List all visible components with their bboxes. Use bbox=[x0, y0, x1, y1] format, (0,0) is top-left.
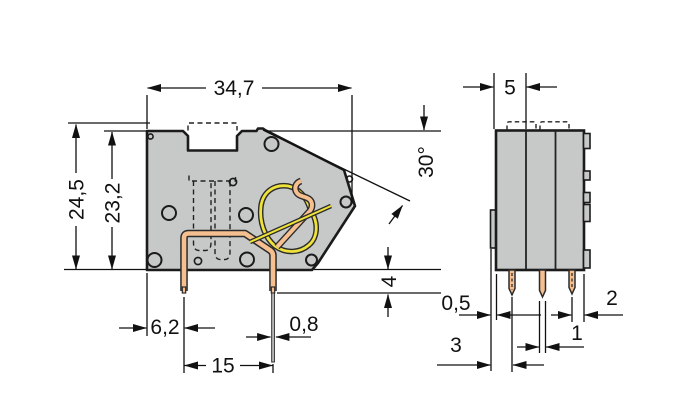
solder-pin bbox=[540, 270, 546, 297]
dim-total-height-label: 24,5 bbox=[66, 179, 89, 220]
dim-pin-width-front-label: 1 bbox=[571, 322, 583, 345]
pushbutton-dashed-top bbox=[507, 122, 569, 130]
front-solder-pins bbox=[509, 270, 575, 297]
dim-pin-protrusion-label: 4 bbox=[378, 275, 401, 287]
fixing-tab bbox=[584, 171, 591, 180]
dim-overall-width-label: 34,7 bbox=[214, 77, 255, 100]
pushbutton-raised-outline bbox=[188, 123, 237, 131]
dim-pin-width-side-label: 0,8 bbox=[289, 313, 318, 336]
solder-pin-1-tip bbox=[182, 287, 185, 293]
dim-pin-spacing-label: 15 bbox=[211, 355, 234, 378]
dim-edge-to-pin-center-label: 3 bbox=[450, 334, 462, 357]
front-view bbox=[491, 122, 591, 297]
fixing-tab bbox=[584, 205, 591, 222]
solder-pin-2-tip bbox=[271, 287, 274, 293]
fixing-tab bbox=[584, 193, 591, 203]
technical-drawing-page: 34,7 24,5 23,2 30° 4 6,2 15 0,8 5 0,5 2 … bbox=[0, 0, 697, 402]
dim-edge-to-pin-label: 2 bbox=[606, 287, 618, 310]
dim-rib-width-label: 0,5 bbox=[441, 292, 470, 315]
front-housing bbox=[496, 131, 584, 271]
fixing-tab bbox=[584, 250, 591, 268]
dim-pin-offset-label: 6,2 bbox=[150, 316, 179, 339]
fixing-tab bbox=[584, 134, 591, 149]
dim-pole-width-label: 5 bbox=[504, 77, 516, 100]
solder-pin-wire bbox=[272, 293, 275, 362]
terminal-block-dimension-drawing: 34,7 24,5 23,2 30° 4 6,2 15 0,8 5 0,5 2 … bbox=[0, 0, 697, 402]
housing-outline bbox=[147, 129, 355, 271]
dim-angle-label: 30° bbox=[415, 146, 438, 178]
dim-housing-height-label: 23,2 bbox=[102, 183, 125, 224]
